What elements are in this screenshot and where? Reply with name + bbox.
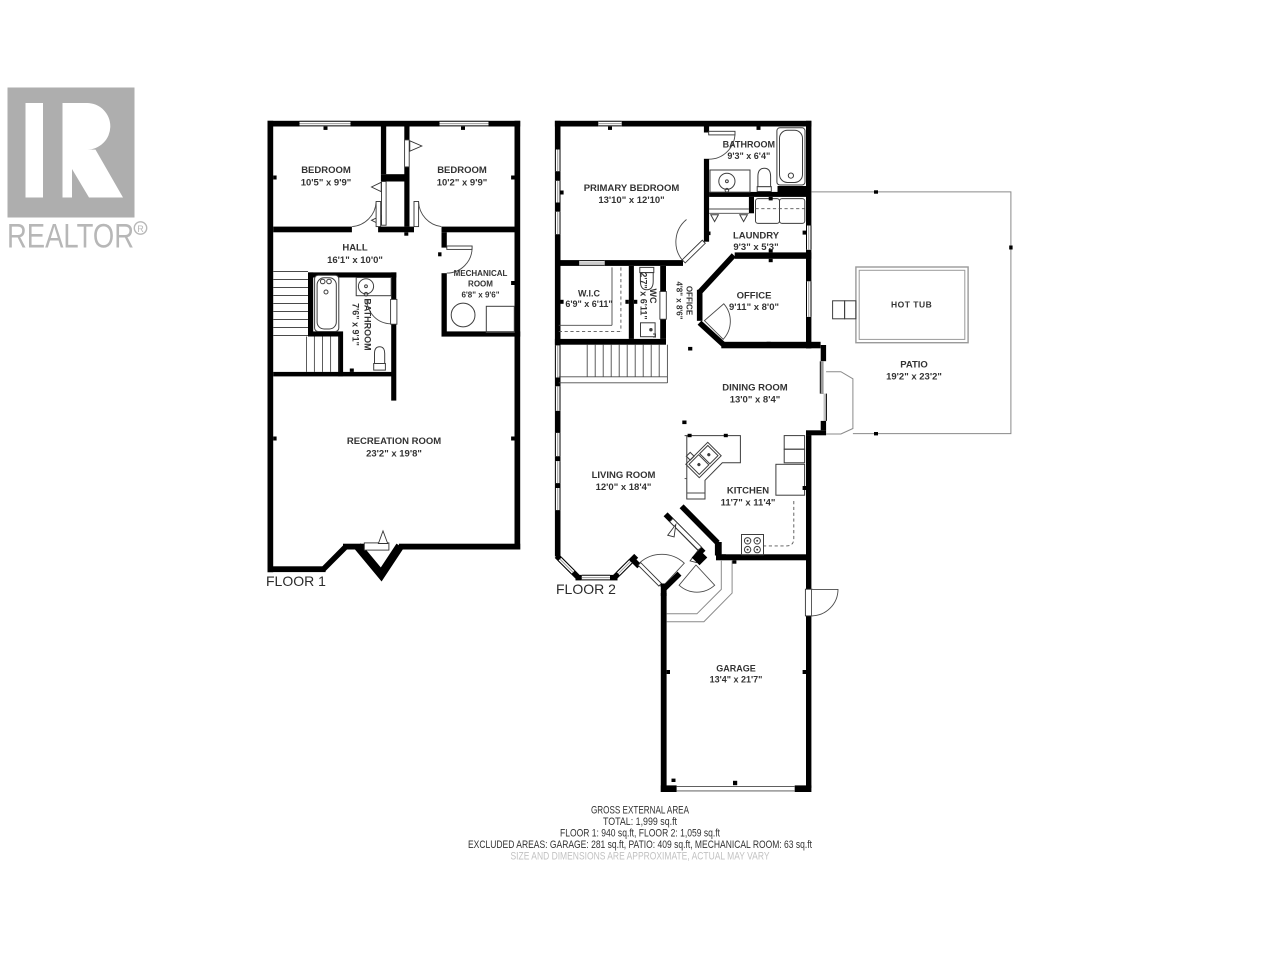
svg-text:13'10" x 12'10": 13'10" x 12'10" [598,195,664,206]
svg-text:6'8" x 9'6": 6'8" x 9'6" [461,290,499,299]
svg-text:ROOM: ROOM [468,280,493,289]
svg-text:19'2" x 23'2": 19'2" x 23'2" [886,371,942,382]
svg-text:16'1" x 10'0": 16'1" x 10'0" [327,255,383,266]
svg-text:MECHANICAL: MECHANICAL [454,269,508,278]
svg-text:BEDROOM: BEDROOM [437,165,487,176]
svg-text:HOT TUB: HOT TUB [891,300,932,310]
svg-text:LAUNDRY: LAUNDRY [733,231,780,242]
svg-text:OFFICE: OFFICE [737,291,772,302]
svg-text:13'0" x 8'4": 13'0" x 8'4" [730,395,781,406]
svg-text:12'0" x 18'4": 12'0" x 18'4" [596,482,652,493]
svg-text:WC: WC [648,289,658,304]
svg-text:R: R [137,224,144,234]
svg-text:10'2" x 9'9": 10'2" x 9'9" [437,178,488,189]
svg-text:BEDROOM: BEDROOM [301,165,351,176]
svg-text:11'7" x 11'4": 11'7" x 11'4" [721,498,776,509]
svg-text:PATIO: PATIO [900,359,928,370]
svg-text:LIVING ROOM: LIVING ROOM [592,470,656,481]
svg-text:REALTOR: REALTOR [7,218,134,256]
svg-text:10'5" x 9'9": 10'5" x 9'9" [301,178,352,189]
svg-text:7'6" x 9'1": 7'6" x 9'1" [351,303,361,346]
svg-text:OFFICE: OFFICE [685,286,694,316]
svg-text:FLOOR 2: FLOOR 2 [556,581,616,597]
svg-text:9'3" x 5'3": 9'3" x 5'3" [733,242,778,253]
svg-text:13'4" x 21'7": 13'4" x 21'7" [710,674,763,684]
svg-text:DINING ROOM: DINING ROOM [722,383,788,394]
svg-text:KITCHEN: KITCHEN [727,486,769,497]
svg-text:6'9" x 6'11": 6'9" x 6'11" [565,299,612,309]
svg-text:PRIMARY BEDROOM: PRIMARY BEDROOM [584,183,680,194]
svg-text:SIZE AND DIMENSIONS ARE APPROX: SIZE AND DIMENSIONS ARE APPROXIMATE, ACT… [511,851,771,863]
svg-text:9'11" x 8'0": 9'11" x 8'0" [729,302,779,313]
svg-text:RECREATION ROOM: RECREATION ROOM [347,436,441,447]
svg-text:W.I.C: W.I.C [578,289,600,299]
svg-text:9'3" x 6'4": 9'3" x 6'4" [727,151,770,161]
svg-text:4'8" x 8'6": 4'8" x 8'6" [675,281,684,319]
svg-text:HALL: HALL [342,243,368,254]
svg-text:FLOOR 1: 940 sq.ft, FLOOR 2: 1: FLOOR 1: 940 sq.ft, FLOOR 2: 1,059 sq.ft [560,828,720,840]
svg-text:BATHROOM: BATHROOM [363,298,373,350]
svg-text:2'7" x 6'11": 2'7" x 6'11" [639,272,649,319]
svg-text:23'2" x 19'8": 23'2" x 19'8" [366,449,422,460]
svg-text:EXCLUDED AREAS: GARAGE: 281 sq: EXCLUDED AREAS: GARAGE: 281 sq.ft, PATIO… [468,839,812,851]
svg-text:GARAGE: GARAGE [716,664,756,674]
svg-text:TOTAL: 1,999 sq.ft: TOTAL: 1,999 sq.ft [603,816,677,828]
svg-text:BATHROOM: BATHROOM [723,140,775,150]
svg-text:GROSS EXTERNAL AREA: GROSS EXTERNAL AREA [591,805,689,817]
svg-text:FLOOR 1: FLOOR 1 [266,573,326,589]
